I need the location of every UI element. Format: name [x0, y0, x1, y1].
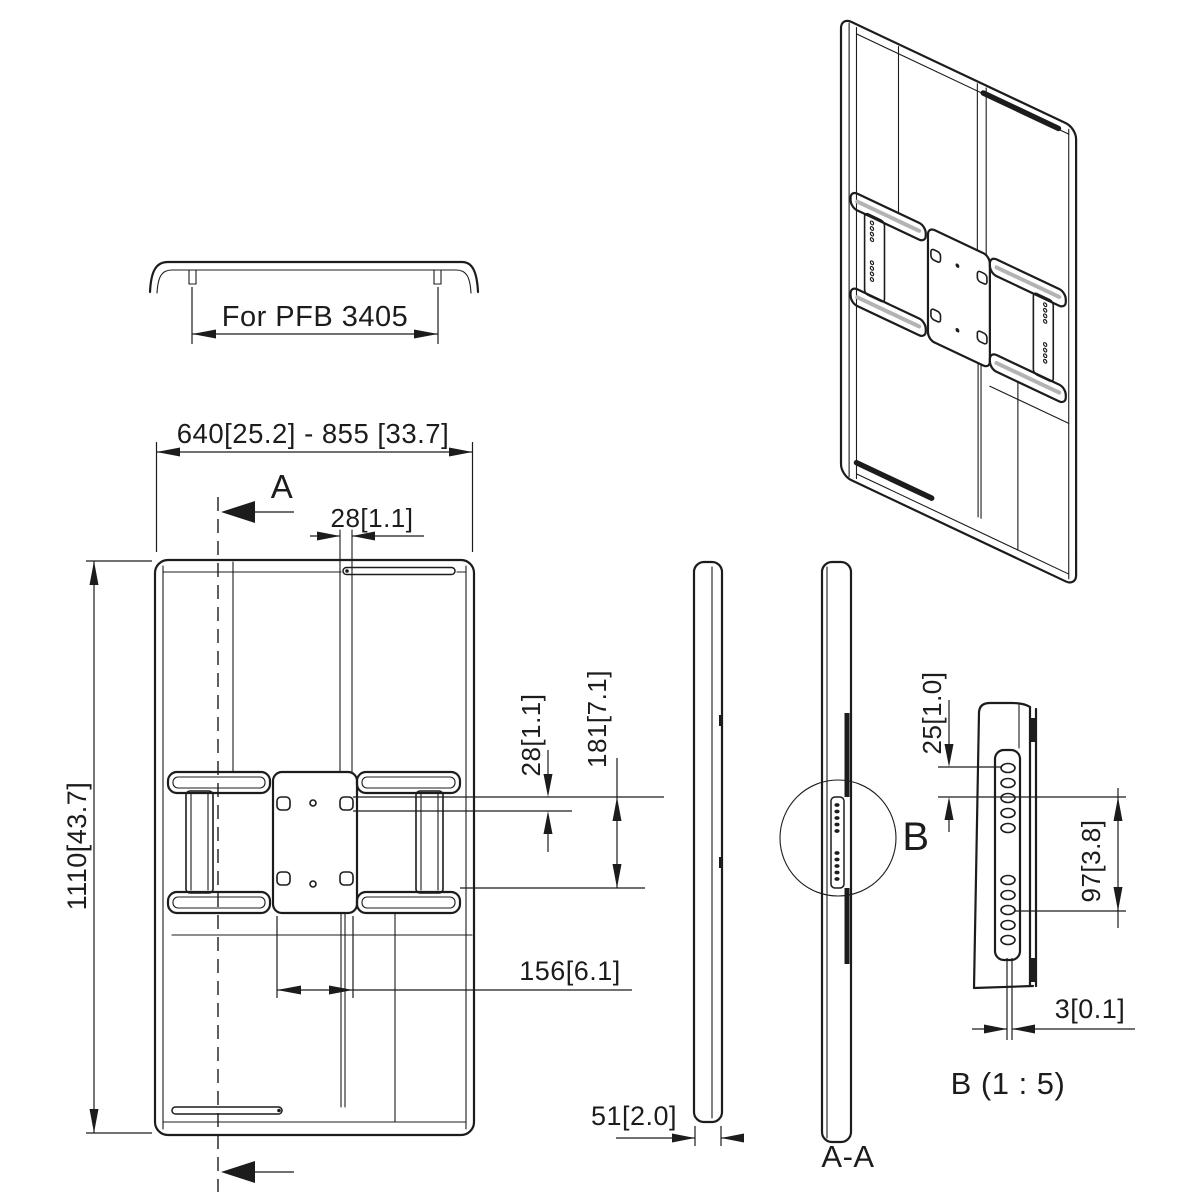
isometric-view: [841, 17, 1076, 586]
side-view-left: 51[2.0]: [591, 562, 744, 1146]
front-top-slot: [343, 568, 455, 575]
detail-letter-b: B: [902, 815, 929, 859]
iso-top-slot: [983, 93, 1058, 128]
section-arrow-bottom-icon: [221, 1161, 294, 1183]
section-arrow-a-icon: A: [221, 468, 294, 523]
detail-bracket: [995, 750, 1020, 960]
svg-text:28[1.1]: 28[1.1]: [516, 693, 546, 776]
front-left-bracket: [186, 791, 213, 893]
front-mount-plate: [273, 772, 357, 913]
svg-text:25[1.0]: 25[1.0]: [917, 671, 947, 754]
svg-text:181[7.1]: 181[7.1]: [582, 670, 612, 768]
top-view-dimension: For PFB 3405: [192, 287, 438, 344]
dim-thickness: 3[0.1]: [972, 958, 1135, 1040]
svg-text:28[1.1]: 28[1.1]: [330, 503, 413, 533]
dim-hole-width: 156[6.1]: [277, 916, 632, 998]
iso-left-bracket: [865, 212, 885, 303]
section-strip-top: [845, 713, 850, 797]
front-view: A 640[25.2] - 855 [33.7] 28[1.1]: [62, 418, 664, 1192]
technical-drawing: For PFB 3405: [0, 0, 1200, 1200]
svg-text:97[3.8]: 97[3.8]: [1076, 819, 1106, 902]
front-right-bracket: [416, 791, 443, 893]
side-profile-outline: [694, 562, 722, 1122]
top-view: For PFB 3405: [150, 262, 478, 344]
top-view-profile: [150, 262, 478, 293]
section-bracket-window: [831, 797, 844, 888]
detail-notch-top: [1029, 718, 1036, 742]
front-bottom-slot: [172, 1107, 282, 1114]
dim-overall-width: 640[25.2] - 855 [33.7]: [157, 418, 473, 552]
section-strip-bottom: [845, 888, 850, 964]
dim-hole-span: 181[7.1]: [460, 670, 645, 888]
detail-profile: [974, 703, 1036, 988]
top-view-label: For PFB 3405: [222, 301, 409, 333]
dim-overall-height: 1110[43.7]: [62, 561, 152, 1133]
svg-text:3[0.1]: 3[0.1]: [1055, 994, 1126, 1024]
iso-mount-plate: [928, 227, 990, 369]
side-notch-bottom: [719, 857, 722, 868]
dim-slot-width: 28[1.1]: [310, 503, 424, 541]
detail-notch-bottom: [1029, 958, 1036, 982]
side-notch-top: [719, 715, 722, 726]
svg-text:1110[43.7]: 1110[43.7]: [62, 782, 92, 911]
iso-bottom-slot: [856, 463, 931, 498]
detail-title: B (1 : 5): [951, 1066, 1066, 1101]
svg-text:51[2.0]: 51[2.0]: [591, 1101, 677, 1131]
section-label-aa: A-A: [821, 1139, 874, 1174]
detail-view-b: 25[1.0] 97[3.8] 3[0.1] B (1 : 5): [917, 671, 1135, 1101]
dim-hole-pitch: 25[1.0]: [917, 671, 1126, 832]
drawing-canvas: For PFB 3405: [0, 0, 1200, 1200]
dim-group-span: 97[3.8]: [1015, 788, 1126, 928]
section-letter-a: A: [271, 468, 294, 505]
svg-text:156[6.1]: 156[6.1]: [519, 956, 621, 986]
iso-right-bracket: [1033, 292, 1053, 383]
front-panel-outline: [155, 560, 474, 1135]
svg-text:640[25.2] - 855 [33.7]: 640[25.2] - 855 [33.7]: [177, 418, 449, 449]
section-view-aa: B A-A: [780, 562, 930, 1174]
